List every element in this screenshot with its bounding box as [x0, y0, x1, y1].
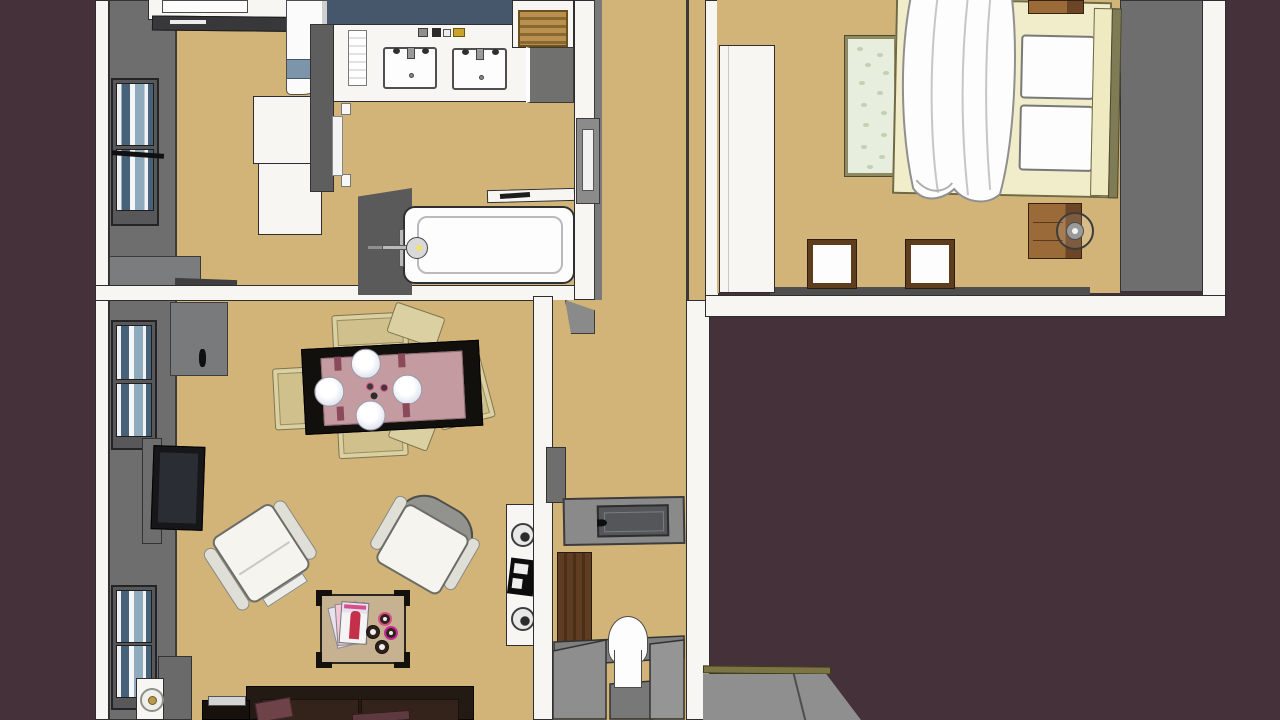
toiletry-item-gold	[453, 28, 465, 37]
wardrobe-seam	[728, 46, 729, 292]
coaster-center	[379, 644, 385, 650]
coaster	[375, 640, 389, 654]
sink-left	[383, 47, 437, 89]
magazine-figure	[349, 611, 361, 640]
platform-fold-line	[792, 671, 808, 720]
lamp-base	[148, 696, 157, 705]
platform-olive-edge	[703, 665, 831, 674]
napkin	[334, 357, 342, 371]
hanging-towel	[332, 116, 343, 176]
cooktop-appliance	[162, 0, 248, 13]
toiletry-item	[432, 28, 441, 37]
device-slot	[512, 578, 523, 589]
coaster	[366, 625, 380, 639]
window-pane	[116, 149, 154, 212]
napkin	[337, 406, 345, 420]
magazine-cover	[339, 601, 370, 645]
bathtub-basin	[417, 216, 563, 274]
toiletry-item	[443, 29, 451, 37]
faucet-handle	[393, 48, 400, 54]
lamp-finial	[1072, 228, 1078, 234]
table-bracket	[316, 590, 332, 606]
sink-right	[452, 48, 507, 90]
top-side-table	[1028, 0, 1084, 14]
tv-screen	[151, 445, 206, 531]
faucet-handle	[462, 49, 469, 55]
duvet	[886, 0, 1039, 213]
coaster	[384, 626, 398, 640]
sink-faucet	[476, 48, 484, 60]
dinner-plate	[355, 400, 387, 432]
floor-hatch-landing	[563, 496, 686, 546]
sink-drain	[409, 73, 414, 78]
bathroom-west-wall	[310, 24, 334, 192]
window-pane	[116, 325, 152, 380]
step-right	[650, 640, 684, 719]
round-lamp	[1056, 212, 1094, 250]
interior-wall-south-of-bath	[95, 285, 575, 301]
faucet-handle	[492, 49, 499, 55]
toiletry-item	[418, 28, 428, 37]
coaster-center	[383, 617, 387, 621]
sideboard	[170, 302, 228, 376]
outer-wall-hall-east	[686, 300, 710, 720]
bathroom-north-wall	[327, 0, 519, 26]
step-left	[553, 640, 606, 719]
hall-wall-pillar	[546, 447, 566, 503]
outer-wall-bedroom-east	[1202, 0, 1226, 317]
table-lamp	[140, 688, 164, 712]
bedroom-east-wall	[1120, 0, 1204, 292]
bedroom-south-wall	[705, 295, 1226, 317]
speaker-circle	[511, 523, 535, 547]
table-bracket	[316, 652, 332, 668]
towel-hook	[341, 103, 351, 115]
outer-wall-west	[95, 0, 109, 720]
hatch-inner-line	[604, 511, 664, 532]
bathtub	[403, 206, 575, 284]
coaster-center	[389, 631, 393, 635]
wardrobe	[719, 45, 775, 293]
sideboard-handle	[199, 349, 206, 367]
serving-tray	[208, 696, 246, 706]
corridor-seam	[686, 0, 689, 300]
faucet-handle	[422, 48, 429, 54]
floor-plan-render	[0, 0, 1280, 720]
table-bracket	[394, 590, 410, 606]
wicker-basket	[518, 10, 568, 47]
magazine-title	[344, 604, 366, 610]
window-pane	[116, 83, 154, 146]
napkin	[398, 353, 406, 367]
coaster-center	[370, 629, 376, 635]
window-pane	[116, 383, 152, 438]
dining-table	[301, 340, 483, 435]
window-pane	[116, 590, 152, 643]
coffee-table	[320, 594, 406, 664]
door-glass-slot	[582, 129, 594, 191]
tub-faucet	[382, 229, 422, 267]
floor-cushion-right	[906, 240, 954, 288]
window-middle	[111, 320, 157, 450]
table-bracket	[394, 652, 410, 668]
bathroom-door	[576, 118, 600, 204]
device-slot	[513, 563, 528, 575]
dining-set	[261, 299, 499, 471]
hatch-recess	[597, 504, 670, 537]
counter-utensil	[170, 20, 206, 24]
sink-faucet	[407, 47, 415, 59]
toilet-tank	[614, 650, 642, 688]
wall-living-hall	[533, 296, 553, 720]
floor-corridor	[602, 0, 705, 300]
napkin	[402, 403, 410, 417]
vanity-cabinet	[526, 47, 574, 103]
hand-towel	[348, 30, 367, 86]
duvet-shape	[900, 0, 1016, 202]
coaster	[378, 612, 392, 626]
faucet-sparkle	[416, 245, 422, 251]
speaker-circle	[511, 607, 535, 631]
tv-screen-inner	[158, 452, 198, 523]
bed	[874, 0, 1128, 209]
floor-cushion-left	[808, 240, 856, 288]
sink-drain	[479, 75, 484, 80]
platform-gray	[703, 674, 861, 720]
